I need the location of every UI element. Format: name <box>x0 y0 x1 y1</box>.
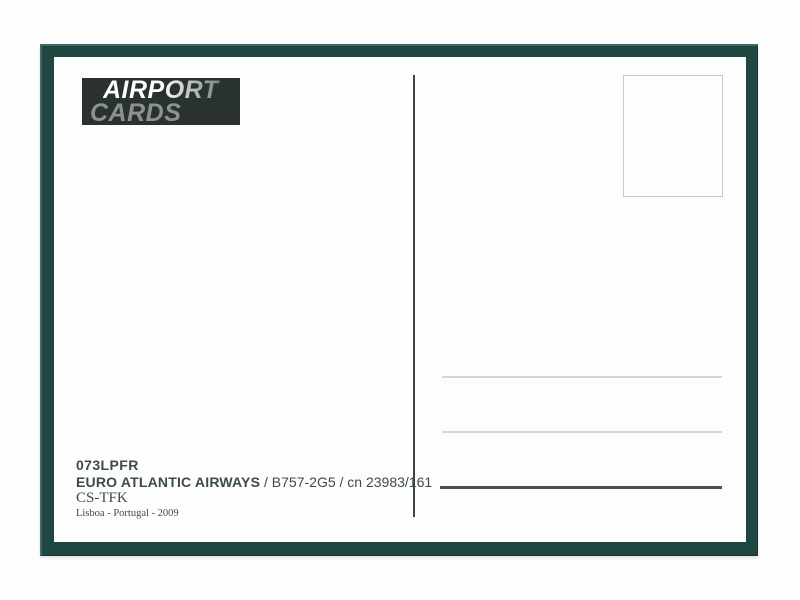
card-number: 073LPFR <box>76 456 432 474</box>
address-line-2 <box>442 431 722 433</box>
postcard-scan-page: AIRPORT CARDS 073LPFR EURO ATLANTIC AIRW… <box>0 0 800 600</box>
airport-cards-logo: AIRPORT CARDS <box>82 78 240 125</box>
postcard-back: AIRPORT CARDS 073LPFR EURO ATLANTIC AIRW… <box>54 57 746 542</box>
card-caption-block: 073LPFR EURO ATLANTIC AIRWAYS / B757-2G5… <box>76 456 432 520</box>
location-year: Lisboa - Portugal - 2009 <box>76 507 432 520</box>
airline-line: EURO ATLANTIC AIRWAYS / B757-2G5 / cn 23… <box>76 474 432 490</box>
address-line-3 <box>440 486 722 489</box>
aircraft-registration: CS-TFK <box>76 490 432 507</box>
postcard-frame: AIRPORT CARDS 073LPFR EURO ATLANTIC AIRW… <box>40 44 758 556</box>
stamp-placement-box <box>623 75 723 197</box>
logo-word-cards: CARDS <box>90 102 240 125</box>
center-divider-line <box>413 75 415 517</box>
address-line-1 <box>442 376 722 378</box>
aircraft-info: / B757-2G5 / cn 23983/161 <box>264 474 432 490</box>
airline-name: EURO ATLANTIC AIRWAYS <box>76 474 260 490</box>
